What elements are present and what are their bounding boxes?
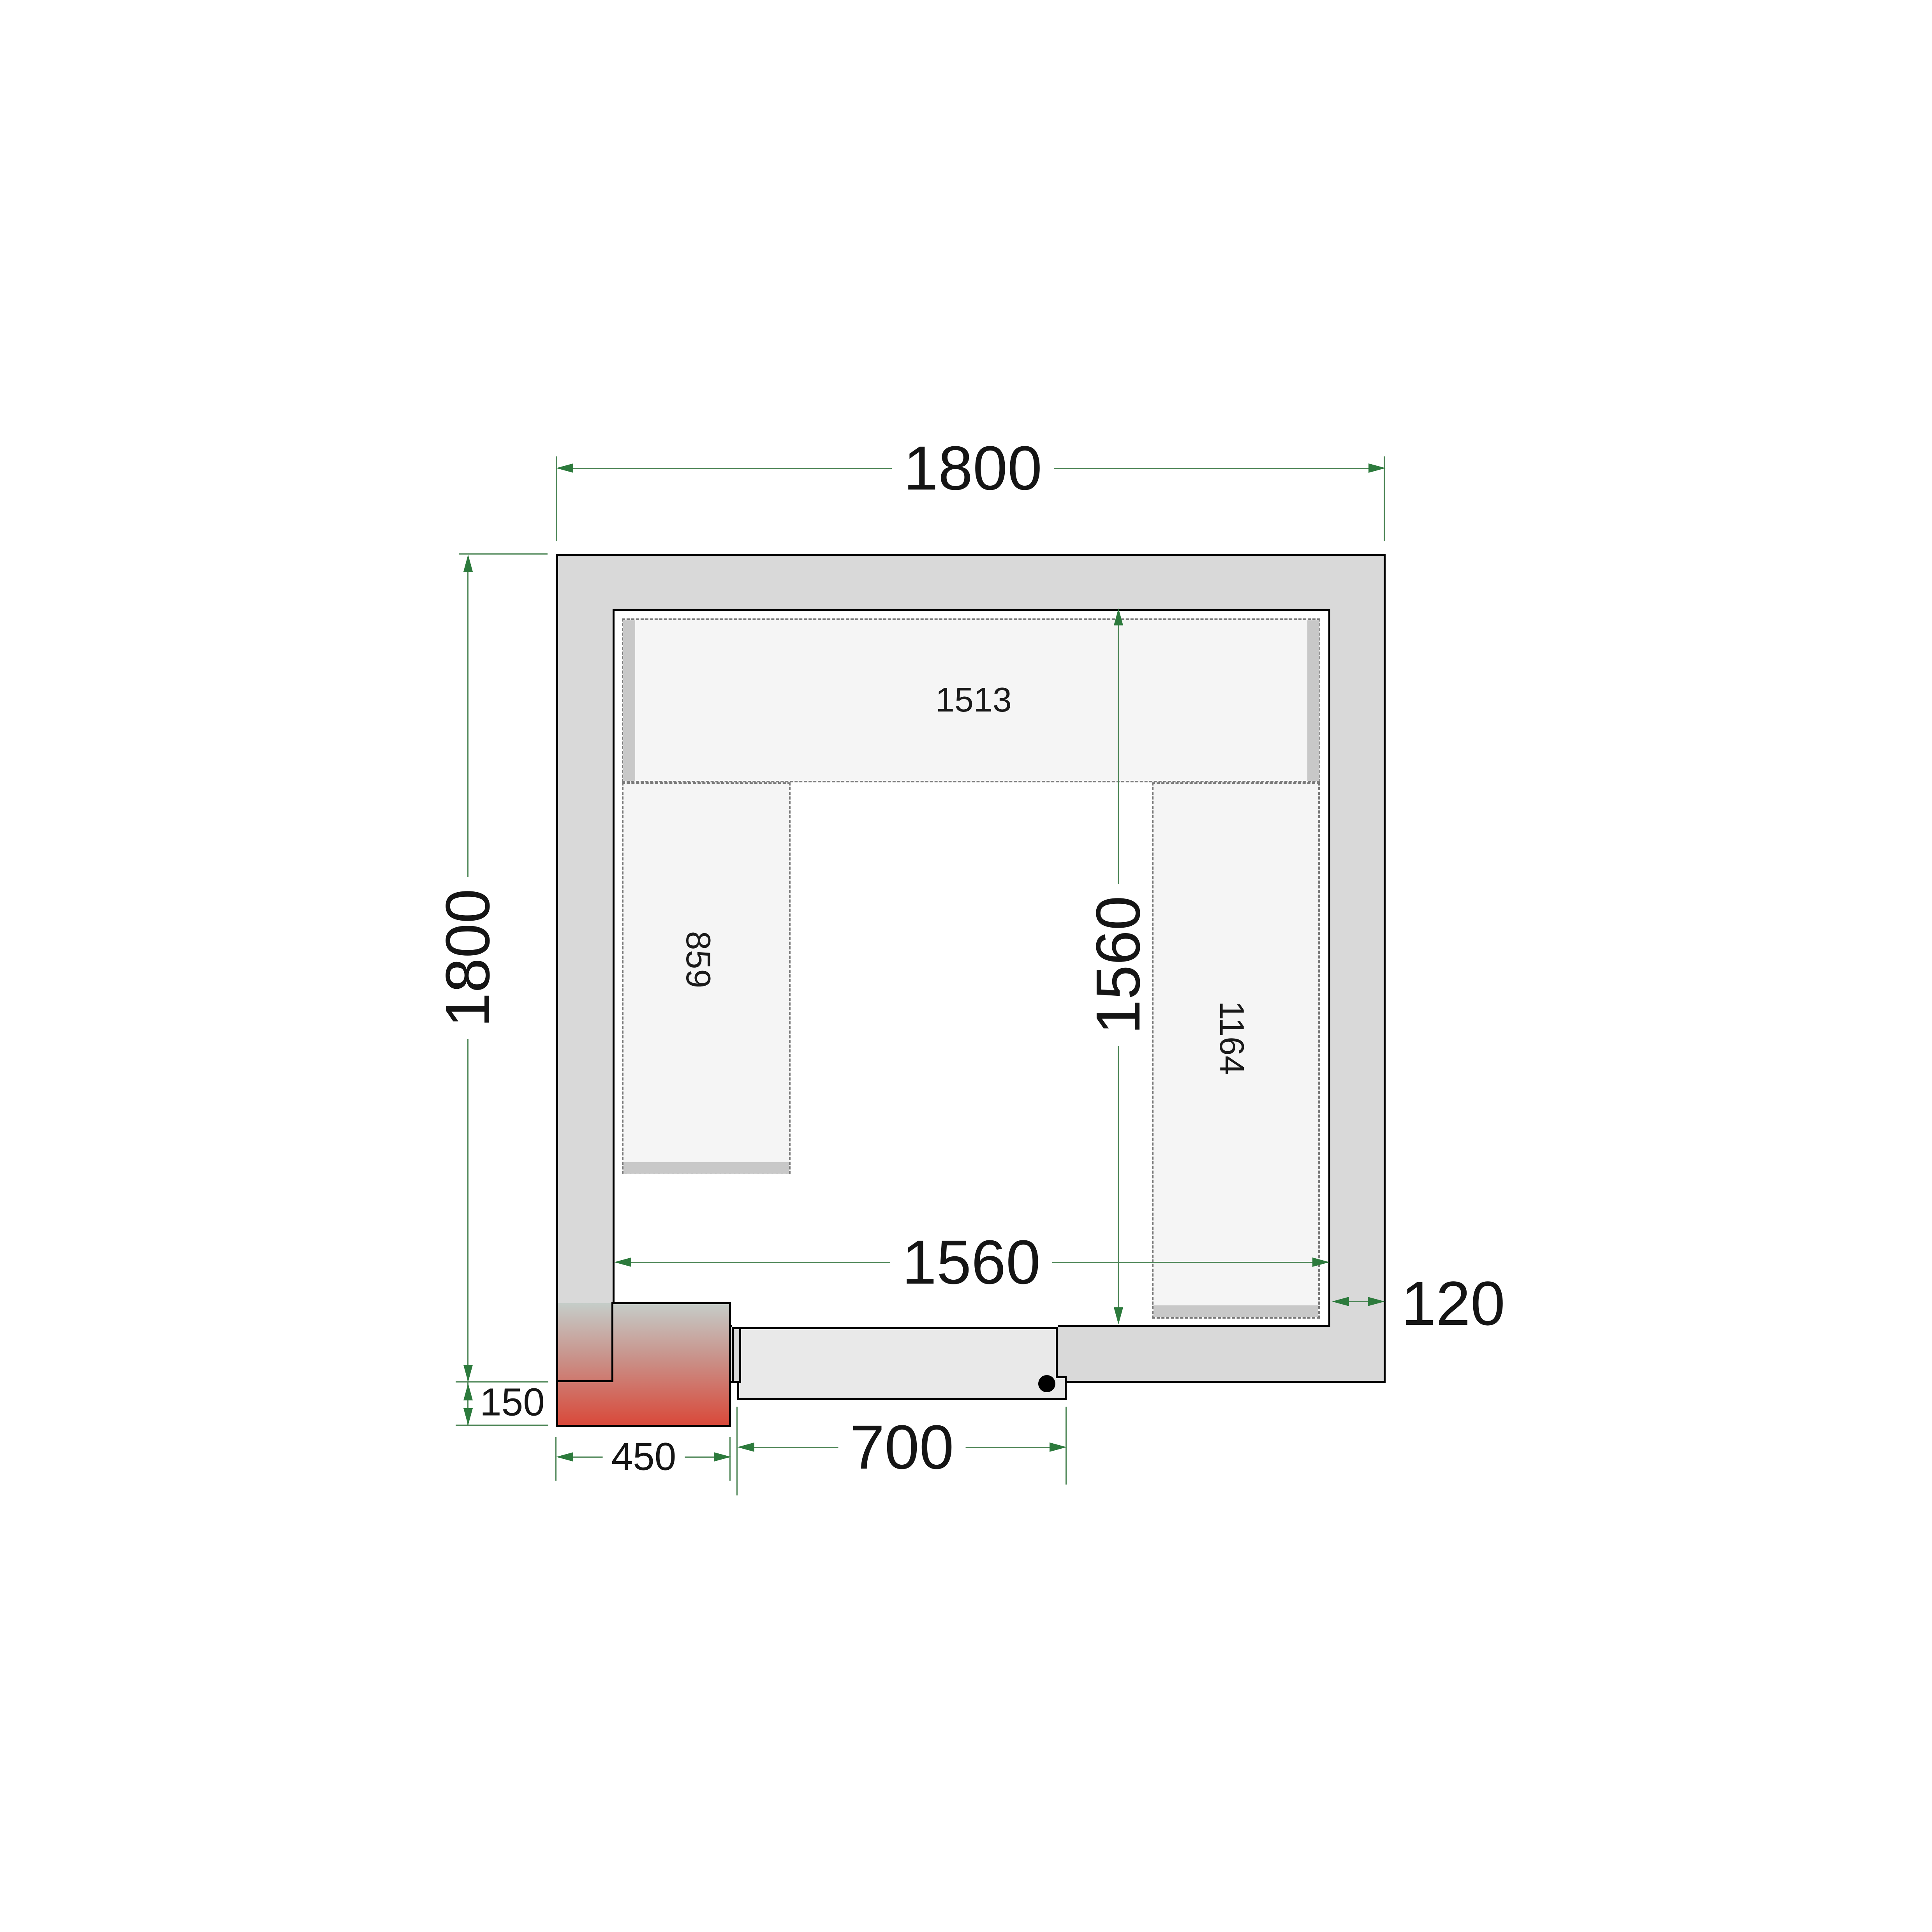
dim-label-outer-width: 1800 bbox=[892, 435, 1054, 501]
dim-arrow-left-icon bbox=[556, 1452, 573, 1462]
dim-arrow-up-icon bbox=[1114, 608, 1123, 625]
dim-arrow-down-icon bbox=[463, 1408, 473, 1425]
dim-arrow-right-icon bbox=[1050, 1442, 1067, 1452]
dim-arrow-right-icon bbox=[1368, 463, 1386, 473]
dim-arrow-right-icon bbox=[714, 1452, 731, 1462]
dim-arrow-left-icon bbox=[737, 1442, 754, 1452]
dim-arrow-down-icon bbox=[463, 1365, 473, 1382]
dim-arrow-up-icon bbox=[463, 555, 473, 572]
dim-arrow-left-icon bbox=[614, 1257, 631, 1267]
dim-label-unit-offset: 150 bbox=[480, 1382, 545, 1423]
shelf-right-depth-label: 1164 bbox=[1215, 1001, 1249, 1074]
dim-label-inner-height: 1560 bbox=[1085, 884, 1151, 1046]
shelf-top-depth-label: 1513 bbox=[935, 683, 1012, 717]
dim-arrow-left-icon bbox=[556, 463, 573, 473]
dim-arrow-down-icon bbox=[1114, 1307, 1123, 1324]
dim-arrow-right-icon bbox=[1312, 1257, 1330, 1267]
door-panel bbox=[737, 1327, 1058, 1400]
dim-arrow-left-icon bbox=[1332, 1297, 1349, 1306]
condensing-unit bbox=[556, 1303, 731, 1427]
shelf-top-left-upright bbox=[623, 620, 635, 781]
dim-label-wall-thickness: 120 bbox=[1401, 1271, 1505, 1336]
cold-room-floor-plan: 1513 859 1164 1800 1800 1560 1560 120 45… bbox=[0, 0, 1932, 1932]
shelf-top-right-upright bbox=[1307, 620, 1319, 781]
wall-bottom-edge-line bbox=[556, 1380, 613, 1382]
door-handle-dot bbox=[1038, 1375, 1055, 1392]
dim-label-outer-height: 1800 bbox=[435, 877, 500, 1039]
shelf-left-support-band bbox=[623, 1162, 789, 1174]
door-panel-edge bbox=[1056, 1376, 1067, 1400]
dim-label-unit-width: 450 bbox=[603, 1437, 685, 1478]
dim-label-door-width: 700 bbox=[838, 1414, 966, 1480]
shelf-left-depth-label: 859 bbox=[681, 931, 715, 988]
shelf-right-support-band bbox=[1154, 1305, 1318, 1317]
dim-arrow-up-icon bbox=[463, 1383, 473, 1400]
wall-inner-edge-line bbox=[611, 1303, 613, 1382]
dim-label-inner-width: 1560 bbox=[890, 1229, 1052, 1295]
door-frame-jamb bbox=[732, 1327, 741, 1383]
condensing-unit-top-edge bbox=[611, 1302, 731, 1304]
dim-arrow-right-icon bbox=[1368, 1297, 1385, 1306]
